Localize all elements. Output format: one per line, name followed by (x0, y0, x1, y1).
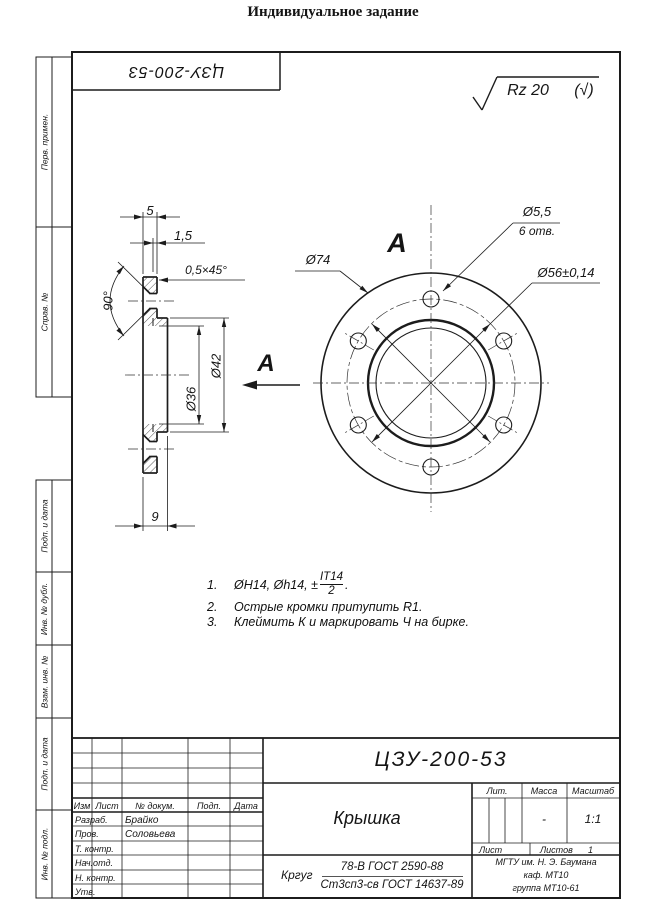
tb-row-label: Утв. (75, 887, 95, 897)
margin-label-podp-data-1: Подп. и дата (36, 480, 53, 572)
dim-flange-thickness: 5 (146, 203, 153, 218)
margin-label-inv-podl: Инв. № подл. (36, 810, 53, 898)
roughness-bracket: (√) (574, 82, 593, 100)
tb-org-line3: группа МТ10-61 (512, 883, 579, 893)
tb-row-value: Соловьева (125, 829, 175, 840)
tb-row-value: Брайко (125, 815, 158, 826)
margin-label-podp-data-2: Подп. и дата (36, 718, 53, 810)
dim-chamfer: 0,5×45° (185, 263, 227, 277)
rotated-doc-number-stamp: ЦЗУ-200-53 (72, 52, 280, 90)
dim-total-thickness: 9 (151, 509, 158, 524)
tb-mass-value: - (542, 812, 546, 826)
tb-scale-value: 1:1 (585, 812, 602, 826)
page-title: Индивидуальное задание (0, 4, 666, 21)
tb-header-list: Лист (95, 801, 118, 811)
note-1: 1. ØH14, Øh14, ± IT14 2 . (207, 572, 348, 597)
tb-sheet-label: Лист (479, 845, 502, 855)
tb-doc-number: ЦЗУ-200-53 (374, 748, 507, 772)
view-a-title: A (387, 228, 407, 259)
technical-drawing-linework (0, 0, 666, 904)
margin-label-perv-primen: Перв. примен. (36, 57, 53, 227)
margin-label-inv-dubl: Инв. № дубл. (36, 572, 53, 645)
tb-row-label: Разраб. (75, 815, 108, 825)
note-2: 2. Острые кромки притупить R1. (207, 600, 422, 614)
tb-org-line2: каф. МТ10 (524, 870, 569, 880)
tb-header-podp: Подп. (197, 801, 221, 811)
stamp-text: ЦЗУ-200-53 (128, 62, 224, 80)
dim-step: 1,5 (174, 228, 192, 243)
tb-header-doc: № докум. (135, 801, 175, 811)
tb-sheets-value: 1 (588, 845, 593, 855)
tb-material-bottom: Ст3сп3-св ГОСТ 14637-89 (320, 879, 463, 891)
dim-d42: Ø42 (209, 354, 224, 379)
margin-label-vzam-inv: Взам. инв. № (36, 645, 53, 718)
view-direction-letter: A (257, 350, 274, 378)
tb-mass-label: Масса (531, 786, 558, 796)
tb-part-name: Крышка (333, 808, 400, 829)
tb-row-label: Пров. (75, 829, 99, 839)
note-3: 3. Клеймить К и маркировать Ч на бирке. (207, 615, 469, 629)
tb-row-label: Нач.отд. (75, 858, 113, 868)
tb-material-top: 78-В ГОСТ 2590-88 (341, 861, 444, 873)
tolerance-fraction: IT14 2 (320, 572, 343, 597)
tb-row-label: Т. контр. (75, 844, 114, 854)
dim-d36: Ø36 (184, 387, 199, 412)
dim-hole-count: 6 отв. (519, 224, 555, 238)
dim-hole-diameter: Ø5,5 (523, 204, 551, 219)
tb-header-izm: Изм (74, 801, 91, 811)
dim-bolt-circle: Ø56±0,14 (537, 265, 594, 280)
tb-material-prefix: Кргуг (281, 868, 313, 882)
margin-label-sprav-no: Справ. № (36, 227, 53, 397)
tb-lit-label: Лит. (486, 786, 507, 796)
dim-outer-diameter: Ø74 (306, 252, 331, 267)
tb-sheets-label: Листов (540, 845, 573, 855)
tb-row-label: Н. контр. (75, 873, 116, 883)
dim-countersink-angle: 90° (101, 291, 116, 311)
tb-scale-label: Масштаб (572, 786, 614, 796)
roughness-value: Rz 20 (507, 82, 549, 100)
tb-header-data: Дата (234, 801, 258, 811)
engineering-drawing-sheet: Индивидуальное задание ЦЗУ-200-53 Rz 20 … (0, 0, 666, 904)
tb-org-line1: МГТУ им. Н. Э. Баумана (495, 857, 596, 867)
